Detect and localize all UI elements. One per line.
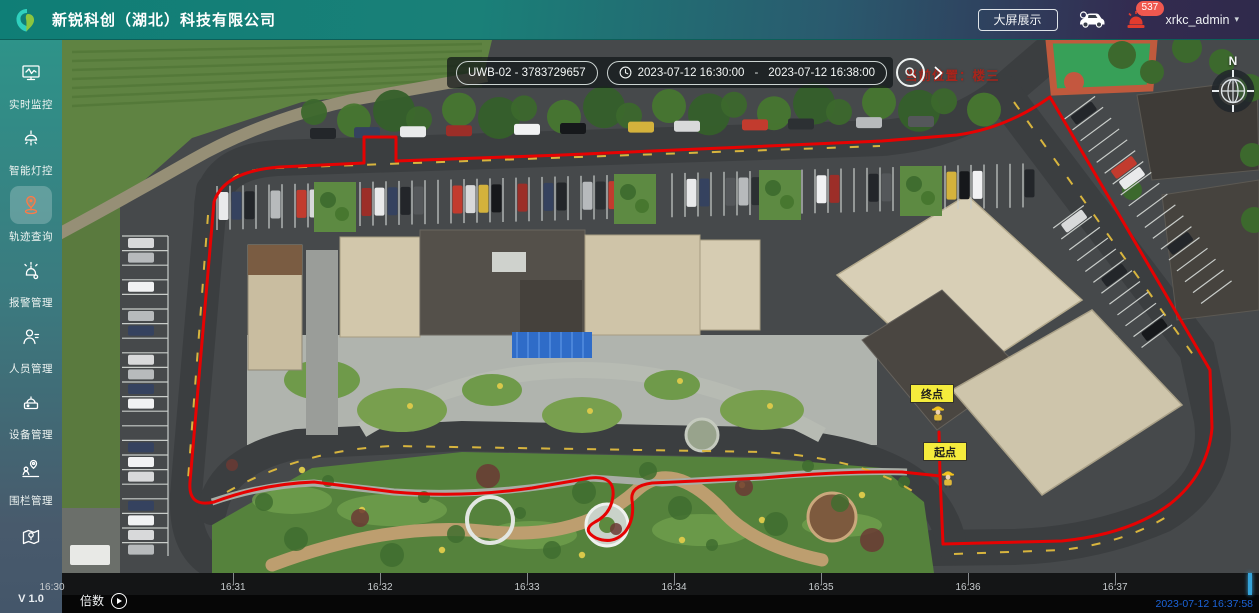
app-version: V 1.0 — [18, 593, 44, 605]
tick-label: 16:32 — [367, 582, 392, 593]
chevron-right-icon — [934, 66, 943, 80]
playback-timeline: 16:30 16:31 16:32 16:33 16:34 16:35 16:3… — [62, 573, 1259, 613]
device-icon — [10, 384, 52, 422]
sidebar-item-fence-management[interactable]: 围栏管理 — [0, 446, 62, 512]
start-point-marker-label: 起点 — [923, 442, 967, 461]
monitor-icon — [10, 54, 52, 92]
user-menu[interactable]: xrkc_admin ▾ — [1166, 13, 1239, 27]
sidebar-item-trajectory-query[interactable]: 轨迹查询 — [0, 182, 62, 248]
timeline-ruler[interactable]: 16:30 16:31 16:32 16:33 16:34 16:35 16:3… — [62, 573, 1259, 595]
speed-label: 倍数 — [80, 592, 104, 609]
notification-badge: 537 — [1136, 1, 1165, 16]
sidebar-item-realtime-monitor[interactable]: 实时监控 — [0, 50, 62, 116]
tick-label: 16:34 — [661, 582, 686, 593]
sidebar-item-smart-light[interactable]: 智能灯控 — [0, 116, 62, 182]
trajectory-icon — [10, 186, 52, 224]
sidebar-item-device-management[interactable]: 设备管理 — [0, 380, 62, 446]
app-header: 新锐科创（湖北）科技有限公司 大屏展示 537 xrkc_admin — [0, 0, 1259, 40]
time-range-picker[interactable]: 2023-07-12 16:30:00 - 2023-07-12 16:38:0… — [607, 61, 887, 85]
tick-label: 16:36 — [955, 582, 980, 593]
time-start: 2023-07-12 16:30:00 — [638, 67, 745, 79]
aerial-map-image — [62, 40, 1259, 573]
vehicle-search-icon[interactable] — [1078, 11, 1106, 29]
person-icon — [10, 318, 52, 356]
alarm-notification-icon[interactable]: 537 — [1126, 10, 1146, 30]
smart-light-icon — [10, 120, 52, 158]
play-button[interactable] — [111, 593, 127, 609]
company-logo-icon — [14, 7, 40, 33]
clock-icon — [619, 66, 632, 79]
playback-current-time: 2023-07-12 16:37:58 — [1156, 598, 1254, 610]
time-end: 2023-07-12 16:38:00 — [768, 67, 875, 79]
sidebar-item-map[interactable] — [0, 512, 62, 578]
device-select[interactable]: UWB-02 - 3783729657 — [456, 61, 598, 85]
sidebar-nav: 实时监控 智能灯控 轨迹查询 报警管理 — [0, 40, 62, 613]
tick-label: 16:35 — [808, 582, 833, 593]
time-separator: - — [754, 67, 758, 79]
page-title: 新锐科创（湖北）科技有限公司 — [52, 9, 276, 30]
end-point-marker-label: 终点 — [910, 384, 954, 403]
map-canvas[interactable]: UWB-02 - 3783729657 2023-07-12 16:30:00 … — [62, 40, 1259, 573]
username-text: xrkc_admin — [1166, 13, 1230, 27]
big-screen-button[interactable]: 大屏展示 — [978, 9, 1058, 31]
worker-figure-start-icon — [941, 468, 955, 488]
trajectory-toolbar: UWB-02 - 3783729657 2023-07-12 16:30:00 … — [447, 57, 893, 88]
map-icon — [10, 518, 52, 556]
tick-label: 16:31 — [220, 582, 245, 593]
worker-figure-end-icon — [931, 403, 945, 423]
search-icon — [904, 66, 917, 79]
compass-control[interactable]: N — [1208, 54, 1258, 119]
fence-pin-icon — [10, 450, 52, 488]
tick-label: 16:37 — [1102, 582, 1127, 593]
tick-label: 16:30 — [39, 582, 64, 593]
sidebar-item-alarm-management[interactable]: 报警管理 — [0, 248, 62, 314]
alarm-bell-icon — [10, 252, 52, 290]
expand-arrow-button[interactable] — [934, 66, 943, 80]
tick-label: 16:33 — [514, 582, 539, 593]
chevron-down-icon: ▾ — [1234, 14, 1239, 25]
compass-rose-icon — [1210, 68, 1256, 114]
search-button[interactable] — [896, 58, 925, 87]
sidebar-item-personnel-management[interactable]: 人员管理 — [0, 314, 62, 380]
timeline-playhead[interactable] — [1248, 573, 1252, 595]
compass-north-label: N — [1208, 54, 1258, 68]
